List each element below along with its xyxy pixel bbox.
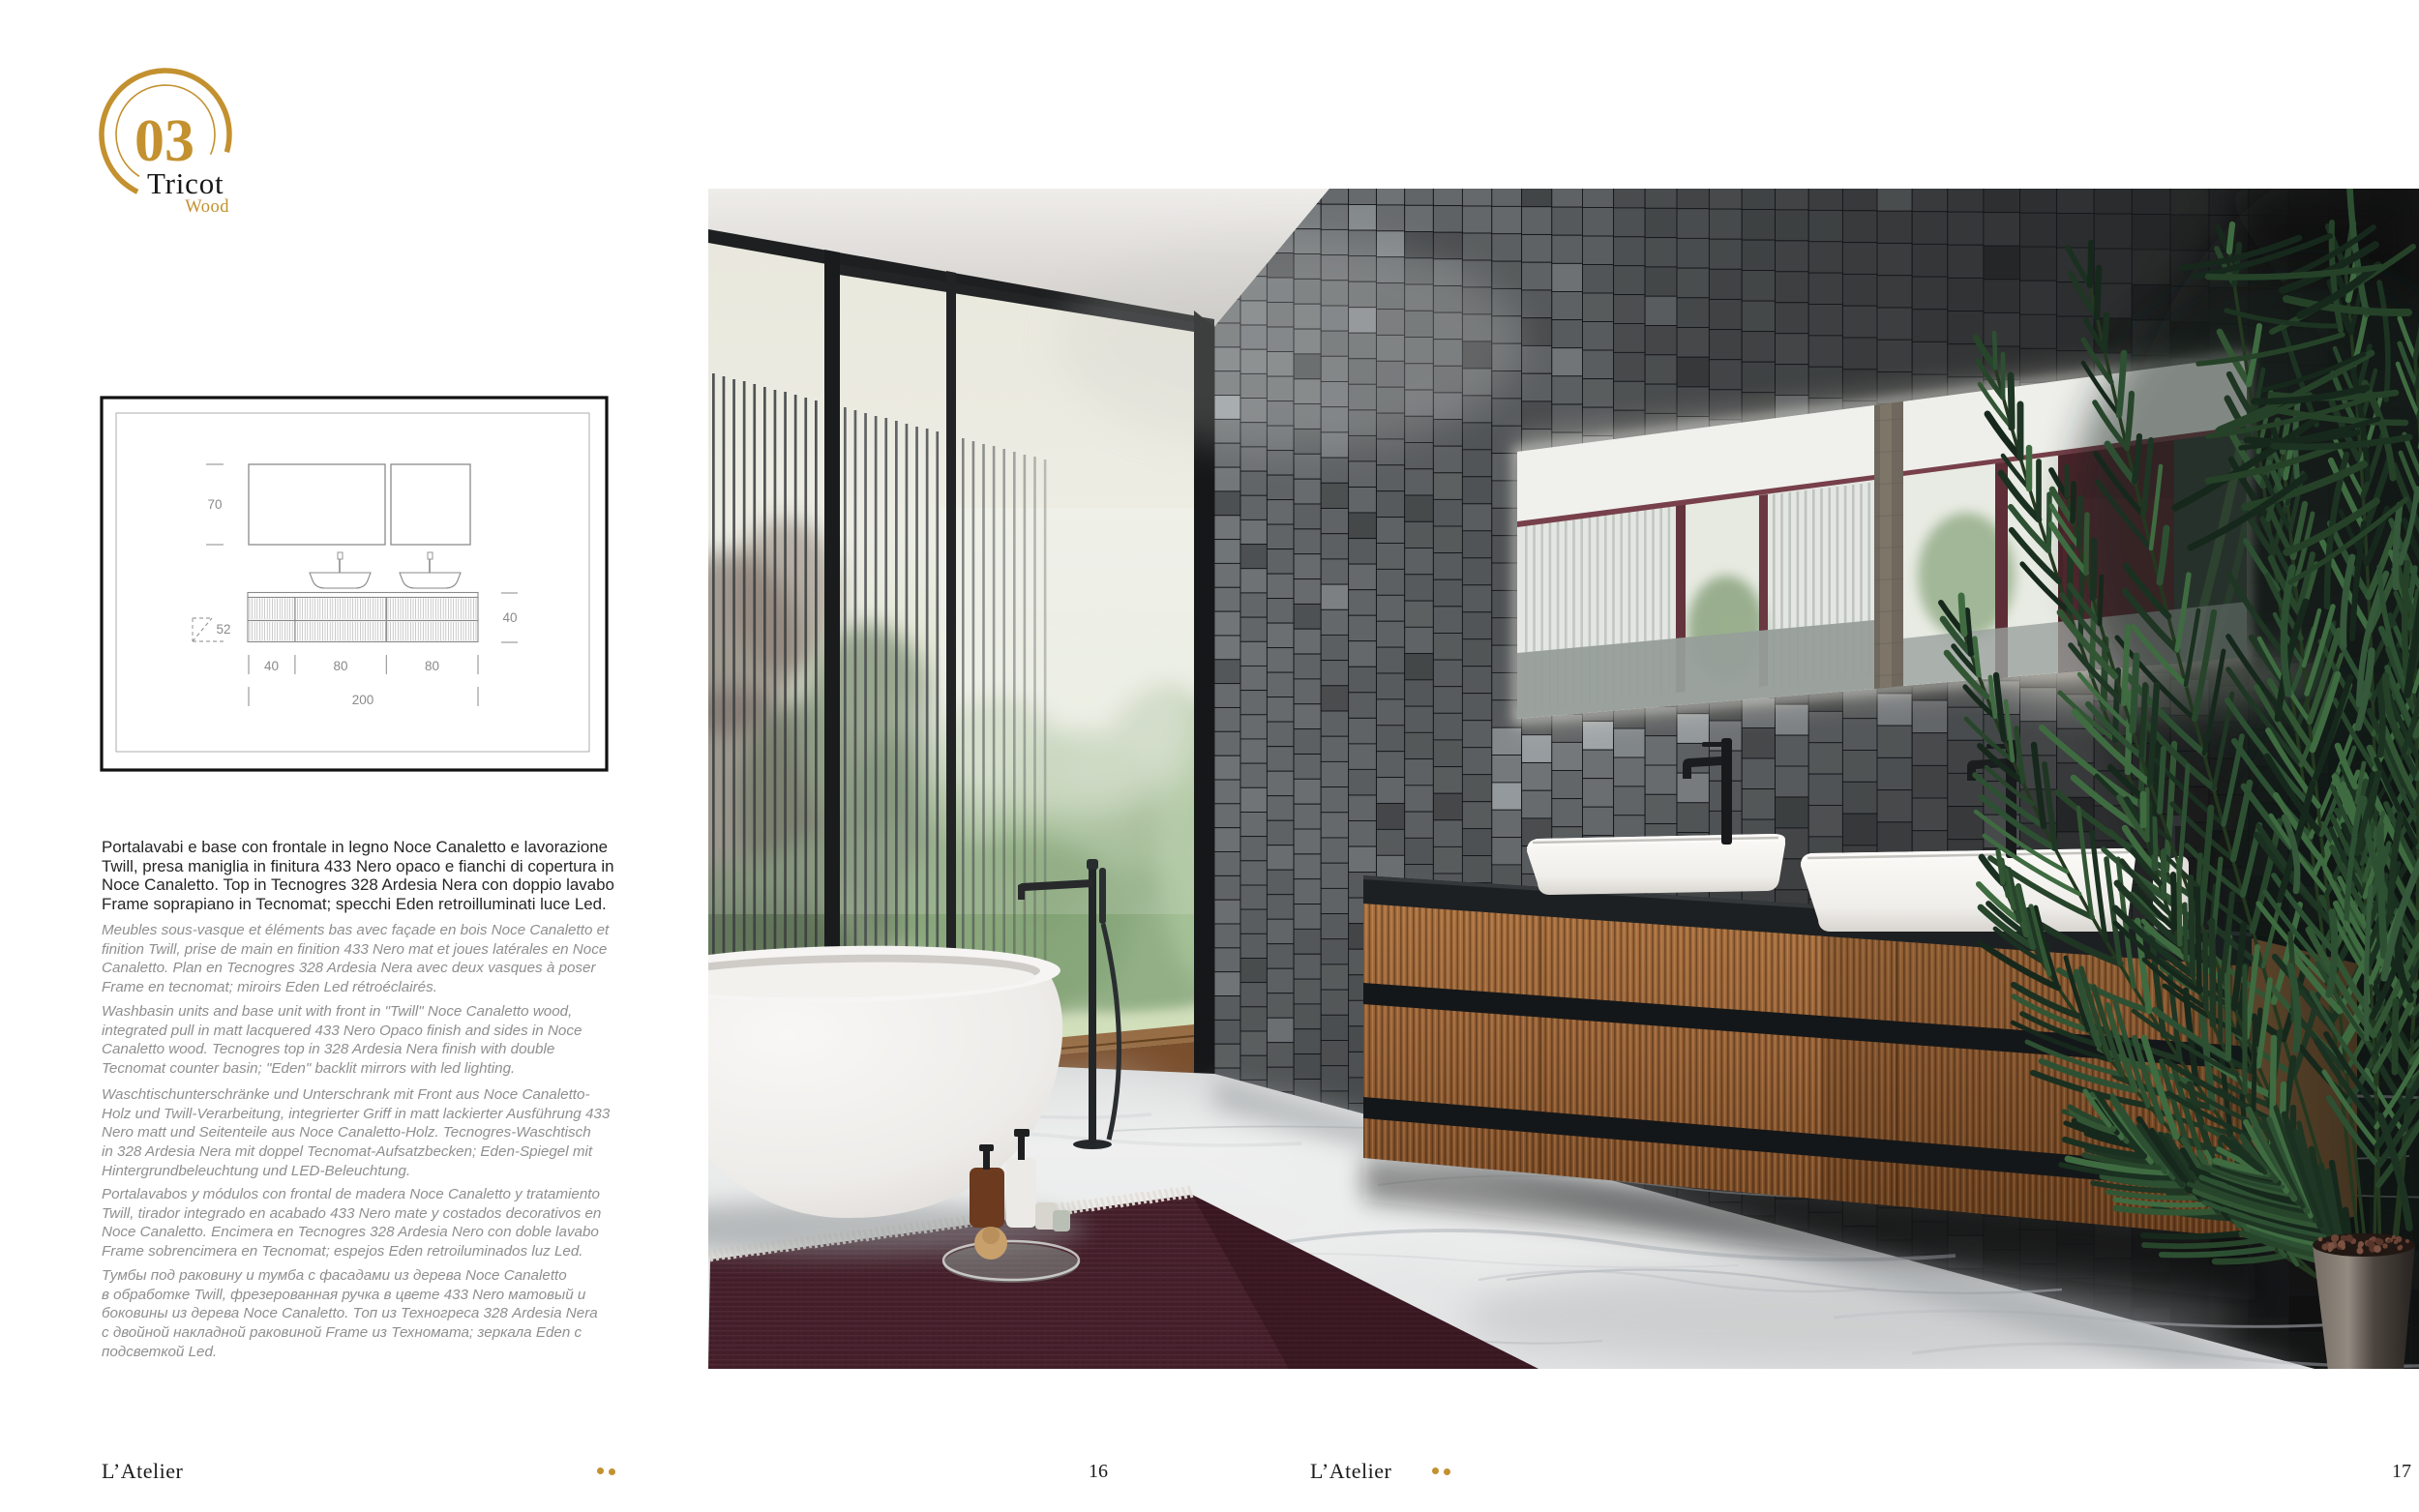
svg-text:200: 200	[352, 693, 374, 707]
svg-text:52: 52	[216, 622, 230, 637]
svg-text:40: 40	[264, 659, 279, 673]
svg-text:70: 70	[207, 497, 222, 512]
svg-text:Wood: Wood	[185, 197, 229, 217]
svg-text:80: 80	[333, 659, 347, 673]
svg-text:80: 80	[425, 659, 439, 673]
svg-text:Tricot: Tricot	[147, 166, 224, 200]
svg-text:03: 03	[134, 108, 194, 174]
svg-text:40: 40	[502, 610, 517, 625]
